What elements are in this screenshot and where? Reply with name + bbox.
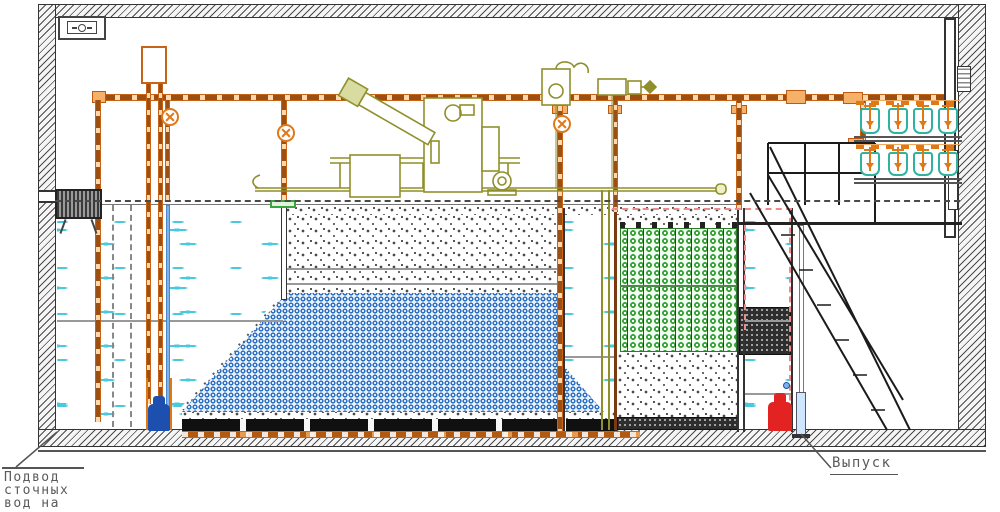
air-valve-icon [553, 115, 571, 133]
foundation-line [38, 450, 986, 452]
aeration-diffuser [938, 152, 958, 176]
joint-line [57, 320, 283, 322]
submersible-pump-blue-head [153, 396, 165, 405]
deck-level-dashed-line [55, 200, 960, 202]
aeration-diffuser [860, 108, 880, 134]
inlet-wall-opening [39, 190, 55, 203]
inlet-label: Подвод сточных вод на очистку [4, 471, 69, 512]
dark-bottom-layer [617, 417, 738, 430]
guide-rail-dashed [130, 205, 132, 427]
aeration-diffuser [888, 152, 908, 176]
baffle-wall [281, 200, 287, 300]
ceiling-slab [38, 4, 986, 18]
diffuser-valve-icon [942, 105, 954, 107]
upper-deck-line [738, 222, 962, 225]
aeration-diffuser [888, 108, 908, 134]
air-valve-icon [161, 108, 179, 126]
joint-line [287, 283, 557, 285]
olive-standpipe [608, 190, 610, 430]
outlet-label: Выпуск [830, 456, 898, 475]
pipe-union [786, 90, 806, 104]
riser-pipe [95, 100, 101, 422]
vent-fan-blade [72, 27, 77, 29]
air-valve-icon [277, 124, 295, 142]
dosing-vessel [141, 46, 167, 84]
diffuser-shelf-row2 [854, 178, 962, 184]
mechanical-equipment-drawing [250, 55, 750, 205]
diffuser-valve-icon [892, 105, 904, 107]
vessel-drop-pipe [158, 84, 163, 404]
inlet-leader-underline [2, 467, 84, 469]
diffuser-valve-icon [917, 105, 929, 107]
aeration-plate-strip [182, 419, 617, 431]
diffuser-valve-icon [864, 105, 876, 107]
treatment-plant-cross-section: Подвод сточных вод на очистку Выпуск [0, 0, 1000, 512]
submersible-pump-blue [148, 404, 170, 431]
joint-line [287, 268, 557, 270]
olive-standpipe [601, 190, 603, 430]
diffuser-valve-icon [917, 149, 929, 151]
media-joint-line [620, 285, 737, 287]
wall-sensor-box [957, 66, 971, 92]
left-wall [38, 4, 56, 447]
diffuser-valve-icon [864, 149, 876, 151]
diffuser-shelf-row1 [854, 136, 962, 142]
vent-fan-hub [78, 24, 86, 32]
aeration-diffuser [913, 152, 933, 176]
channel-wall [563, 208, 565, 431]
inlet-screen-basket [55, 189, 102, 219]
vent-fan-icon [58, 16, 106, 40]
biofilter-edge-pipe [614, 212, 617, 430]
aeration-diffuser [860, 152, 880, 176]
aeration-diffuser [913, 108, 933, 134]
diffuser-valve-icon [892, 149, 904, 151]
diffuser-valve-icon [942, 149, 954, 151]
inlet-pump-frame [170, 378, 172, 430]
upper-gravel-bed [287, 215, 557, 293]
bottom-aeration-pipe [182, 431, 640, 438]
vent-fan-blade [87, 27, 92, 29]
green-biofilter-media [620, 228, 737, 352]
vessel-drop-pipe [146, 84, 151, 404]
biofilter-bottom-gravel [617, 352, 738, 417]
aeration-diffuser [938, 108, 958, 134]
guide-rail-dashed [112, 205, 114, 427]
